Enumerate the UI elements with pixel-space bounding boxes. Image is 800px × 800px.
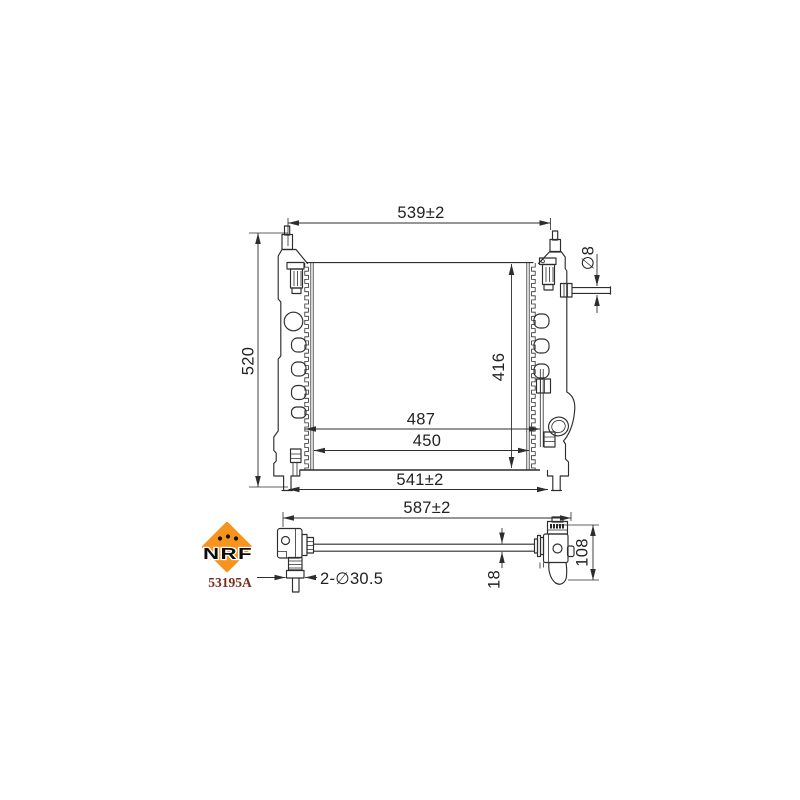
dim-tank-depth-label: 108 [574,538,592,566]
dim-total-width: 587±2 [283,499,571,527]
bottom-view: 587±2 [257,499,599,592]
dim-inlet-diameter-label: ∅8 [580,246,598,270]
left-clamp [302,535,314,556]
left-mount-bracket [287,558,305,593]
right-outlet-teardrop [549,563,567,585]
dim-core-height: 416 [490,264,512,468]
left-plate-edge [311,263,313,470]
radiator-technical-drawing: 539±2 520 ∅8 416 487 450 [0,0,800,800]
left-tank-bracket [287,263,304,294]
dim-inner-width-lower-label: 450 [413,432,441,450]
right-top-cap [548,517,568,534]
dim-overall-height: 520 [240,233,289,487]
left-filler-pin [285,226,290,235]
part-number: 53195A [208,575,252,590]
right-flange [535,536,544,557]
dim-bottom-width: 541±2 [289,471,549,490]
dim-mounting-hole: 2-∅30.5 [257,570,383,588]
dim-bottom-width-label: 541±2 [396,471,443,489]
dim-inlet-diameter: ∅8 [580,246,598,313]
right-end-assembly [535,517,575,584]
dim-overall-height-label: 520 [240,347,258,375]
drain-hole [284,312,303,331]
dim-core-thickness: 18 [486,528,504,589]
brand-block: NRF 53195A [203,524,253,590]
dim-core-thickness-label: 18 [486,570,504,589]
dim-top-width-label: 539±2 [397,204,444,222]
inlet-pipe [561,284,611,298]
left-end-block [278,529,314,593]
dim-inner-width-upper-label: 487 [407,411,435,429]
left-filler-neck [282,235,293,250]
left-side-tabs [292,338,307,418]
dim-core-height-label: 416 [490,353,508,381]
core-bar [314,544,535,551]
nrf-logo-text: NRF [203,546,253,563]
right-filler-pin [553,231,558,240]
dim-inner-width-upper: 487 [305,411,540,430]
dim-inner-width-lower: 450 [314,432,529,451]
right-flange-marks [540,563,544,569]
right-tank-bracket [540,258,557,290]
dim-total-width-label: 587±2 [403,499,450,517]
right-tank [534,231,611,491]
right-plate-edge [527,263,529,470]
outlet-pipe [546,415,571,439]
dim-top-width: 539±2 [288,204,551,246]
dim-mounting-hole-label: 2-∅30.5 [320,570,383,588]
right-side-tabs [534,314,551,393]
dim-tank-depth: 108 [556,525,599,580]
front-view: 539±2 520 ∅8 416 487 450 [240,204,611,491]
left-tank [274,226,308,491]
right-filler-neck [550,240,561,253]
